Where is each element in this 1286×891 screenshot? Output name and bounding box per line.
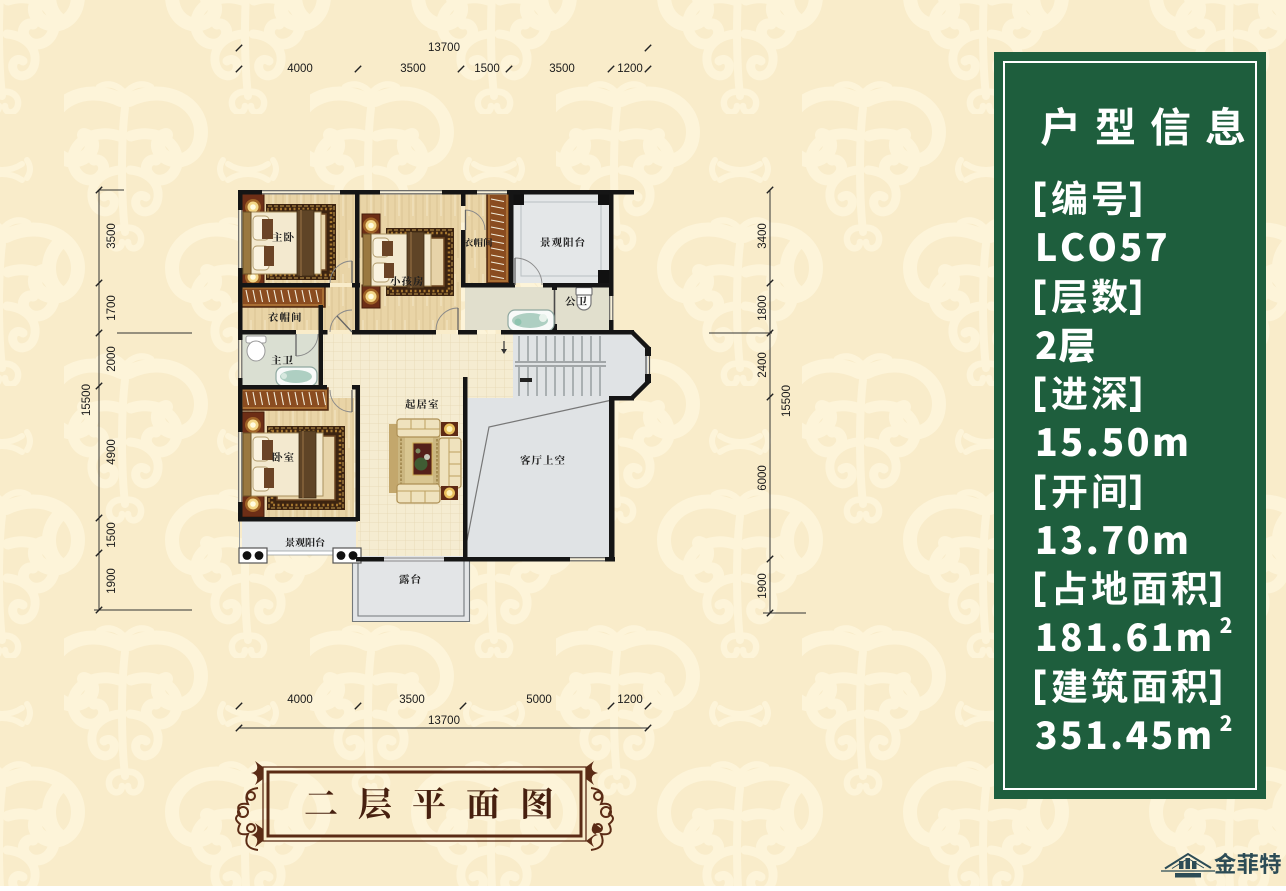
svg-text:3400: 3400: [757, 223, 769, 249]
svg-text:1500: 1500: [474, 63, 500, 75]
svg-text:1900: 1900: [106, 568, 118, 594]
svg-text:15500: 15500: [781, 385, 793, 417]
svg-text:1800: 1800: [757, 295, 769, 321]
svg-text:3500: 3500: [549, 63, 575, 75]
svg-text:13700: 13700: [428, 42, 460, 54]
svg-text:1200: 1200: [617, 63, 643, 75]
svg-text:1700: 1700: [106, 295, 118, 321]
svg-text:1900: 1900: [757, 573, 769, 599]
svg-text:2000: 2000: [106, 346, 118, 372]
svg-text:4000: 4000: [287, 63, 313, 75]
svg-text:1200: 1200: [617, 694, 643, 706]
svg-text:3500: 3500: [399, 694, 425, 706]
svg-text:4900: 4900: [106, 439, 118, 465]
svg-text:2400: 2400: [757, 352, 769, 378]
svg-text:3500: 3500: [106, 223, 118, 249]
svg-text:3500: 3500: [400, 63, 426, 75]
svg-text:6000: 6000: [757, 465, 769, 491]
svg-text:1500: 1500: [106, 522, 118, 548]
svg-text:15500: 15500: [81, 384, 93, 416]
svg-text:4000: 4000: [287, 694, 313, 706]
svg-text:13700: 13700: [428, 715, 460, 727]
svg-text:5000: 5000: [526, 694, 552, 706]
